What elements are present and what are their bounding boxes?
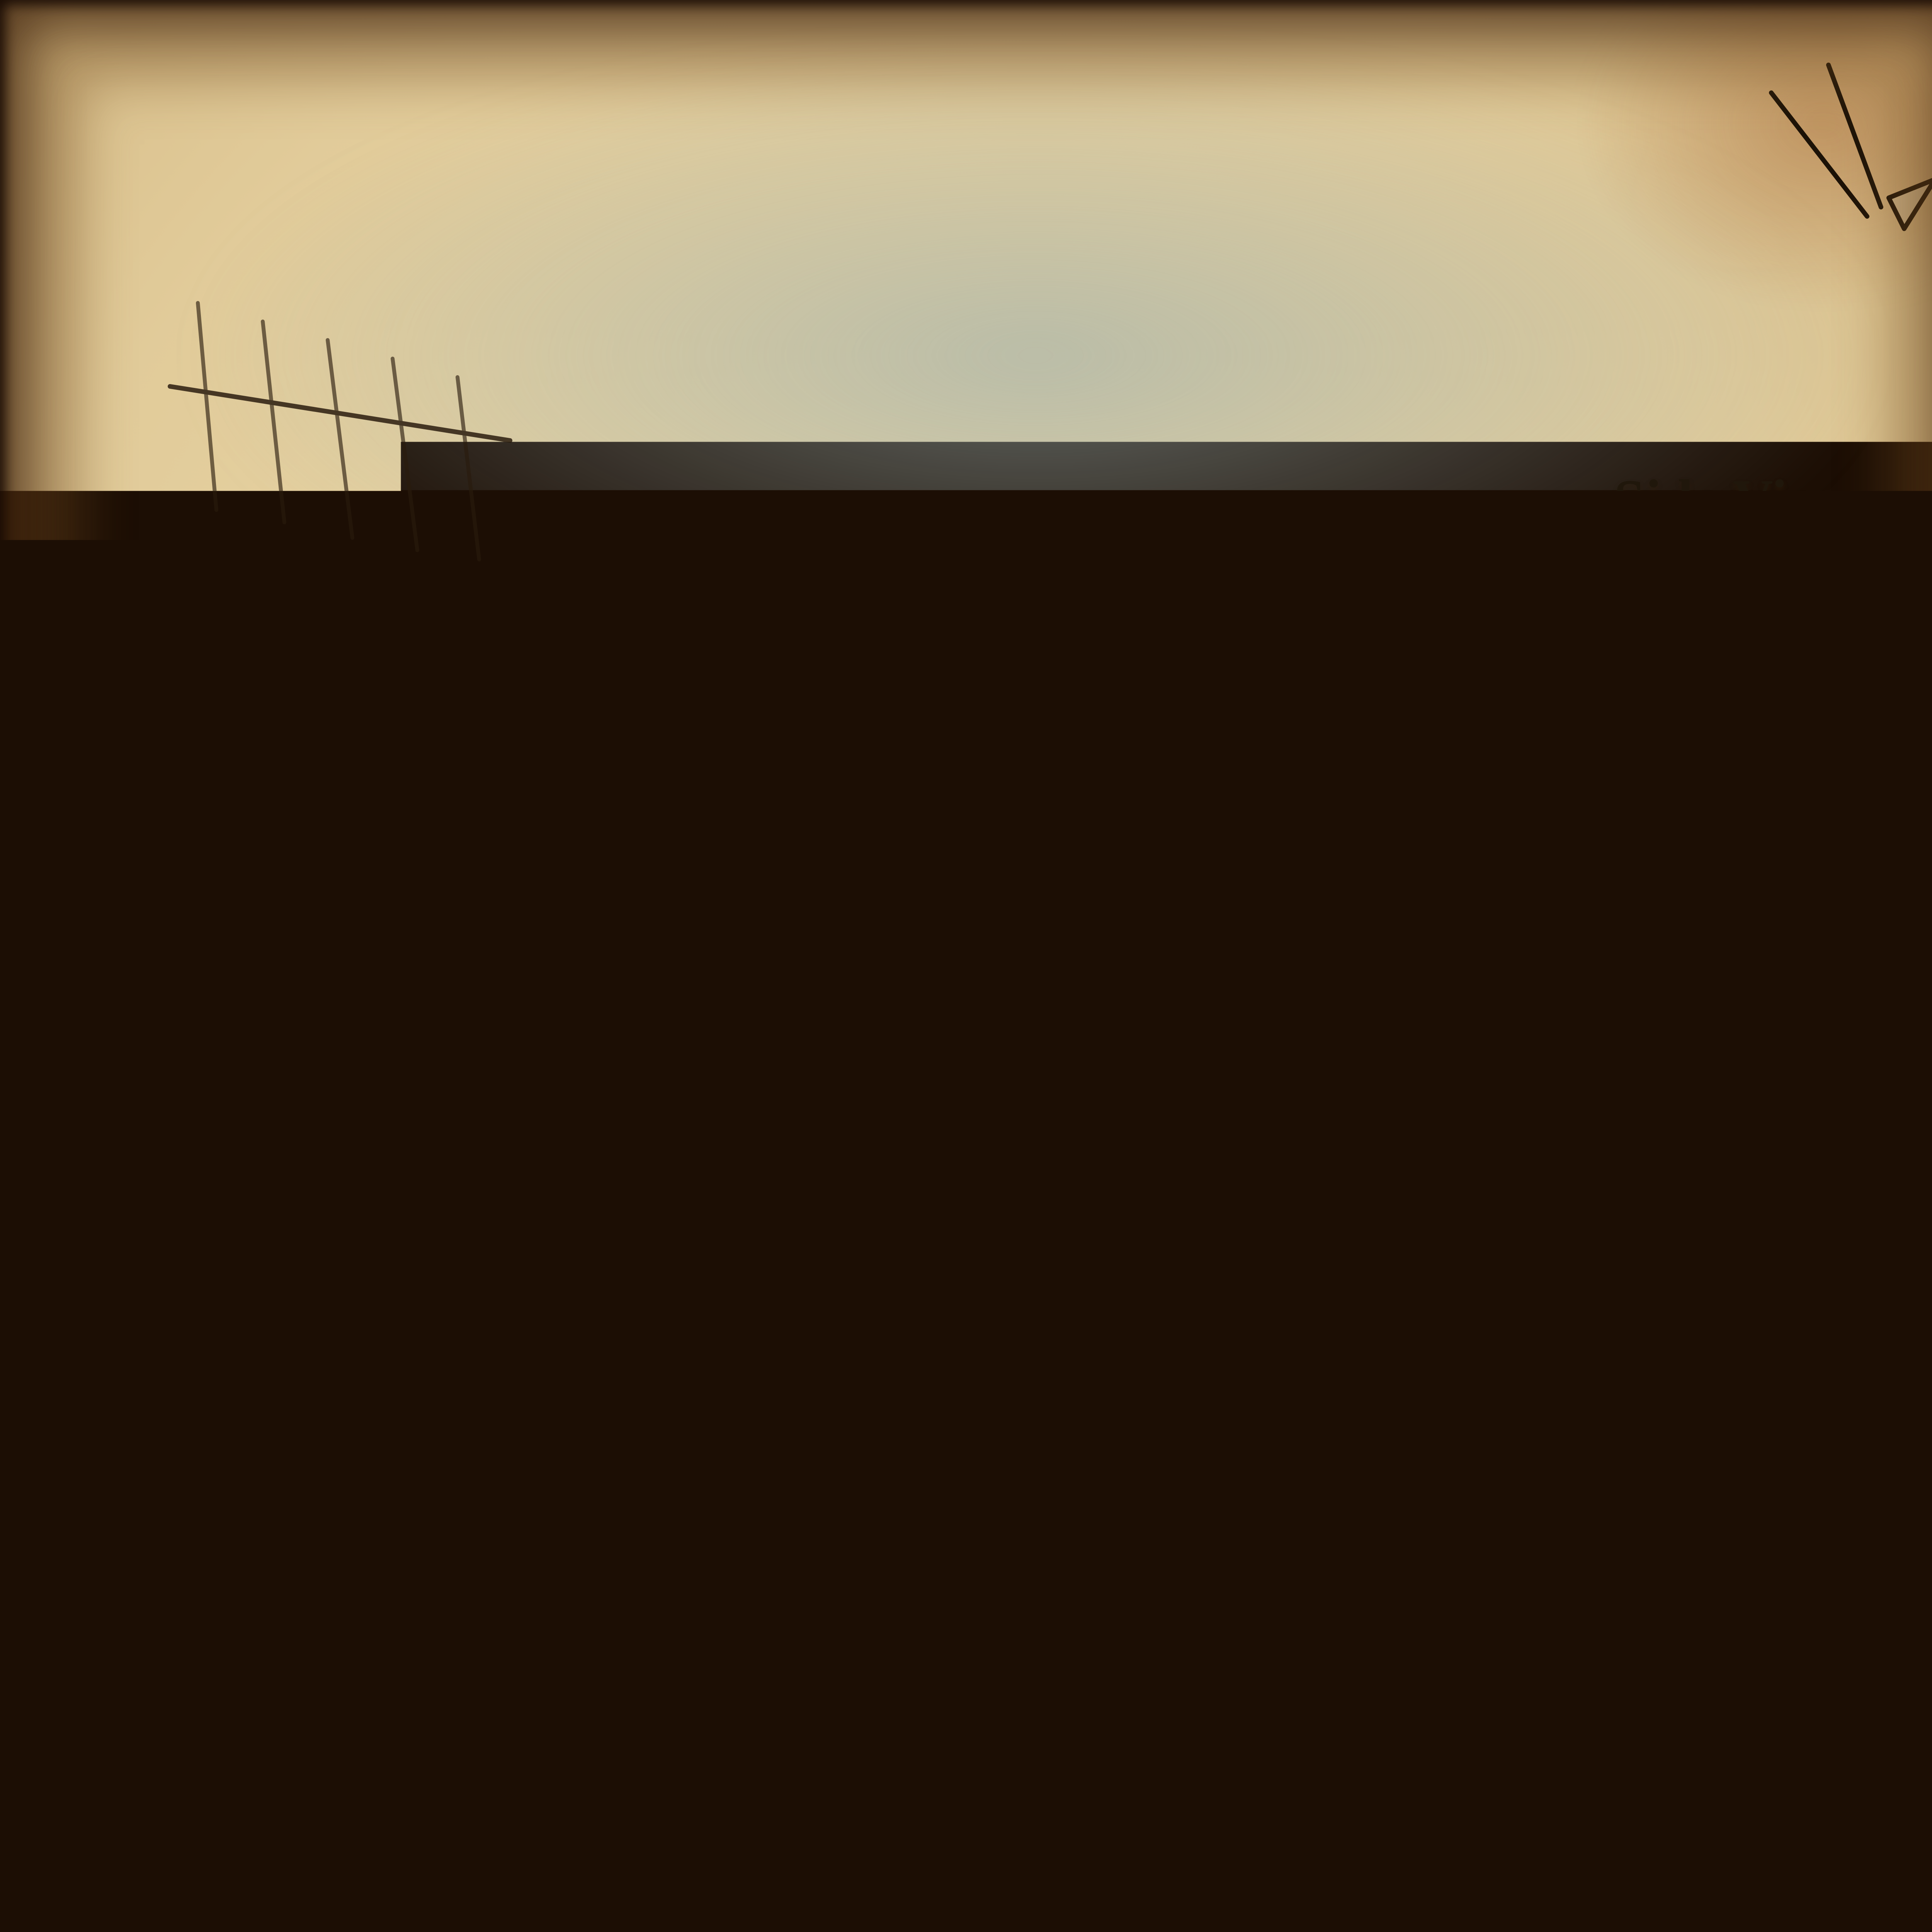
cargo-grating-fore — [781, 1321, 997, 1417]
main-deck-label: Main Deck — [1600, 1062, 1868, 1127]
stair-chip-main-deck-aft: Down — [466, 1349, 647, 1390]
hull — [102, 65, 1932, 651]
side-view-label: Side View — [1614, 467, 1854, 532]
rudder — [139, 651, 196, 739]
down-label-fore: Down — [988, 1157, 1092, 1199]
arrow-left-icon — [1211, 1918, 1273, 1932]
stair-chip-lower-deck-fore: Up — [1211, 1916, 1342, 1932]
stair-chip-main-deck-fore: Down — [988, 1157, 1170, 1199]
parchment-map: N E S W M Side View Main Deck Lower Deck… — [0, 0, 1932, 1932]
main-mast — [603, 39, 620, 487]
lower-deck-ship — [0, 1669, 1932, 1932]
arrow-right-icon — [1108, 1159, 1170, 1196]
fore-mast — [1100, 39, 1117, 478]
bowsprit-harpoon — [1538, 65, 1932, 414]
up-label-fore: Up — [1289, 1916, 1342, 1932]
down-label-aft: Down — [543, 1349, 647, 1390]
submerged-hull — [139, 651, 1357, 754]
harpoon-barbs — [1771, 65, 1881, 216]
arrow-left-icon — [466, 1351, 527, 1388]
storage-chest — [624, 1849, 699, 1932]
cargo-hatch-assembly — [770, 1079, 1051, 1456]
main-deck-ship — [0, 927, 1932, 1592]
lower-deck-label: Lower Deck — [1589, 1816, 1885, 1881]
bowsprit-gold-band — [1462, 1226, 1479, 1281]
main-mast-base — [580, 1227, 632, 1280]
hatch-door — [352, 1215, 402, 1295]
stern-pole — [93, 1236, 238, 1255]
stern-ballista — [148, 173, 260, 229]
shelf — [318, 1849, 402, 1883]
cargo-grating-aft — [781, 1090, 997, 1185]
map-desk — [232, 1907, 315, 1932]
stairwell-up-fore — [1110, 1895, 1221, 1932]
side-view-ship — [0, 0, 1932, 927]
